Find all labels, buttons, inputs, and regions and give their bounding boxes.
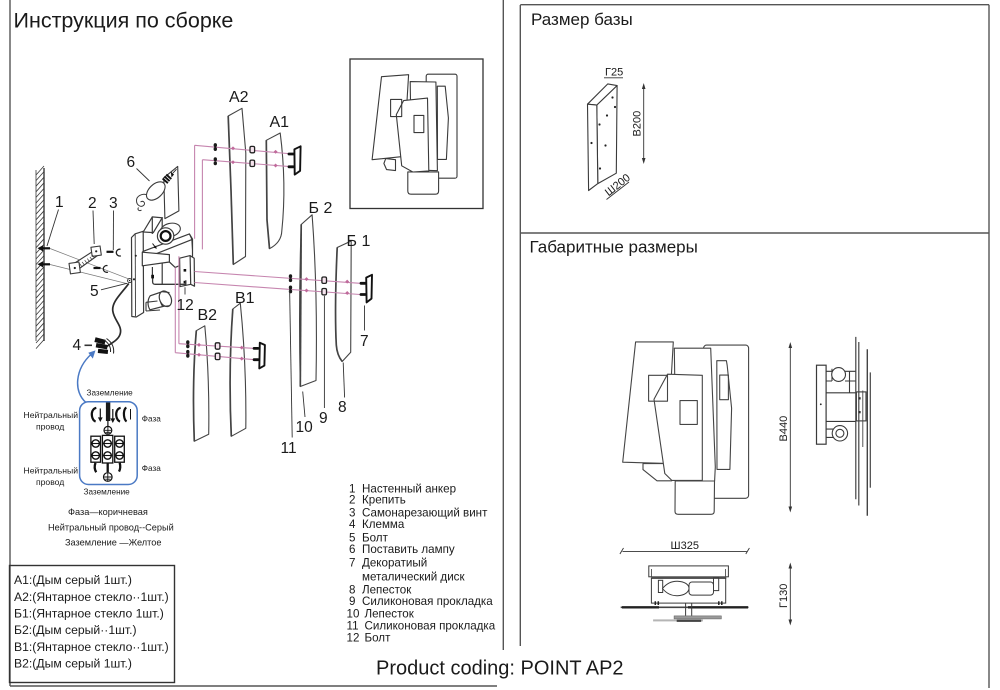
- svg-text:Силиконовая прокладка: Силиконовая прокладка: [365, 619, 496, 632]
- svg-text:5: 5: [90, 283, 99, 300]
- svg-text:Габаритные размеры: Габаритные размеры: [530, 238, 698, 257]
- svg-text:6: 6: [127, 154, 136, 171]
- svg-text:Нейтральный провод--Серый: Нейтральный провод--Серый: [48, 523, 174, 533]
- svg-text:провод: провод: [36, 422, 64, 432]
- svg-text:3: 3: [109, 195, 118, 212]
- svg-text:Заземление —Желтое: Заземление —Желтое: [65, 538, 161, 548]
- svg-text:12: 12: [347, 632, 360, 645]
- svg-text:Болт: Болт: [365, 632, 392, 645]
- svg-text:2: 2: [88, 195, 97, 212]
- svg-text:А1:(Дым серый 1шт.): А1:(Дым серый 1шт.): [14, 573, 132, 587]
- svg-text:2: 2: [349, 494, 355, 507]
- svg-text:8: 8: [338, 399, 347, 416]
- svg-text:провод: провод: [36, 477, 64, 487]
- svg-text:Б 2: Б 2: [309, 200, 333, 217]
- svg-text:Фаза: Фаза: [142, 464, 161, 473]
- svg-text:6: 6: [349, 543, 355, 556]
- svg-text:Заземление: Заземление: [87, 388, 134, 397]
- svg-text:А2: А2: [229, 89, 249, 106]
- svg-text:В200: В200: [632, 111, 644, 137]
- svg-text:В1:(Янтарное стекло··1шт.): В1:(Янтарное стекло··1шт.): [14, 640, 169, 654]
- svg-text:9: 9: [349, 595, 355, 608]
- svg-text:Product coding: POINT AP2: Product coding: POINT AP2: [376, 658, 624, 680]
- svg-text:В2: В2: [198, 307, 218, 324]
- svg-text:А1: А1: [270, 114, 290, 131]
- svg-text:В2:(Дым серый 1шт.): В2:(Дым серый 1шт.): [14, 657, 132, 671]
- svg-text:Инструкция по сборке: Инструкция по сборке: [14, 9, 234, 33]
- svg-text:11: 11: [281, 440, 297, 457]
- svg-text:Крепить: Крепить: [362, 494, 406, 507]
- svg-text:9: 9: [319, 410, 328, 427]
- svg-text:12: 12: [177, 297, 194, 314]
- svg-text:В440: В440: [778, 416, 790, 442]
- svg-text:Б 1: Б 1: [347, 233, 371, 250]
- svg-text:Нейтральный: Нейтральный: [24, 466, 79, 476]
- svg-text:Размер базы: Размер базы: [531, 10, 633, 29]
- svg-text:10: 10: [296, 419, 314, 436]
- svg-text:7: 7: [349, 557, 355, 570]
- svg-text:металический диск: металический диск: [362, 570, 465, 583]
- svg-text:Поставить лампу: Поставить лампу: [362, 543, 455, 556]
- svg-text:Фаза: Фаза: [142, 415, 161, 424]
- svg-text:Б2:(Дым серый··1шт.): Б2:(Дым серый··1шт.): [14, 623, 137, 637]
- svg-text:11: 11: [347, 619, 359, 632]
- svg-text:Силиконовая прокладка: Силиконовая прокладка: [362, 595, 493, 608]
- svg-text:1: 1: [55, 194, 64, 211]
- svg-text:Декоратиый: Декоратиый: [362, 557, 427, 570]
- svg-text:Г130: Г130: [778, 584, 790, 608]
- svg-text:В1: В1: [235, 290, 255, 307]
- svg-text:4: 4: [73, 337, 82, 354]
- svg-text:Б1:(Янтарное стекло 1шт.): Б1:(Янтарное стекло 1шт.): [14, 607, 164, 621]
- svg-text:Нейтральный: Нейтральный: [24, 410, 79, 420]
- svg-text:4: 4: [349, 518, 356, 531]
- svg-text:Заземление: Заземление: [84, 488, 131, 497]
- svg-text:Фаза—коричневая: Фаза—коричневая: [68, 507, 148, 517]
- svg-text:Г25: Г25: [605, 67, 623, 79]
- svg-text:А2:(Янтарное стекло··1шт.): А2:(Янтарное стекло··1шт.): [14, 590, 169, 604]
- svg-text:Ш325: Ш325: [671, 540, 699, 552]
- svg-text:Клемма: Клемма: [362, 518, 405, 531]
- svg-text:7: 7: [360, 333, 369, 350]
